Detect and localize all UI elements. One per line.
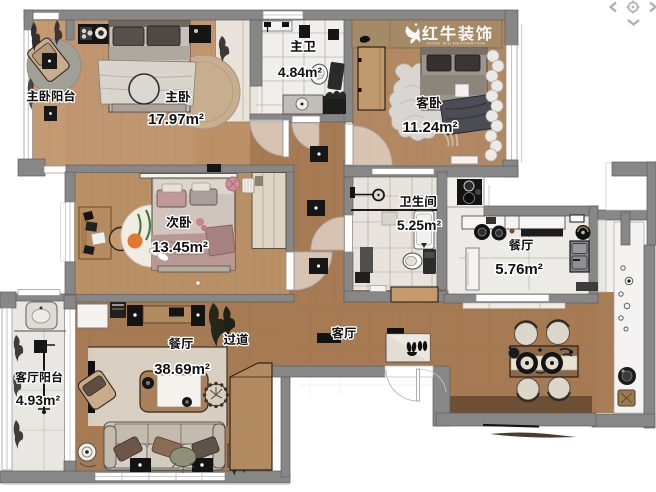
svg-text:38.69m²: 38.69m² (154, 361, 210, 378)
svg-text:17.97m²: 17.97m² (148, 111, 204, 128)
svg-text:13.45m²: 13.45m² (152, 239, 208, 256)
svg-text:HONG NIU DECORATION: HONG NIU DECORATION (427, 41, 486, 46)
svg-text:4.84m²: 4.84m² (278, 64, 323, 80)
svg-text:11.24m²: 11.24m² (402, 119, 457, 136)
svg-text:5.25m²: 5.25m² (397, 217, 442, 233)
svg-text:5.76m²: 5.76m² (495, 261, 543, 278)
svg-text:4.93m²: 4.93m² (16, 392, 61, 408)
